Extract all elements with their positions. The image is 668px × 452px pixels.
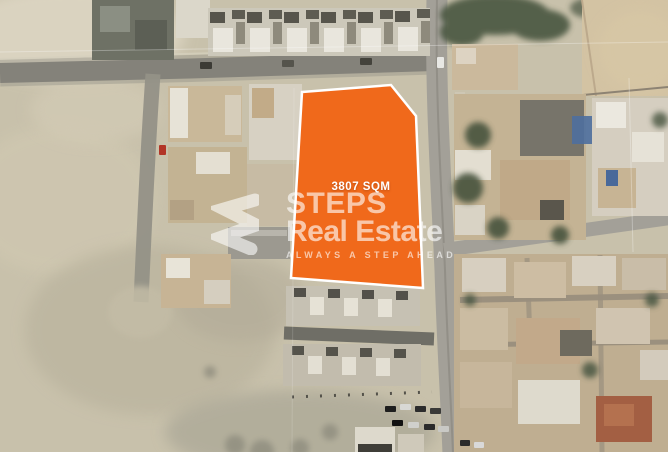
satellite-map-image bbox=[0, 0, 668, 452]
property-listing-map: 3807 SQM STEPS Real Estate ALWAYS A STEP… bbox=[0, 0, 668, 452]
plot-area-label: 3807 SQM bbox=[332, 181, 391, 193]
